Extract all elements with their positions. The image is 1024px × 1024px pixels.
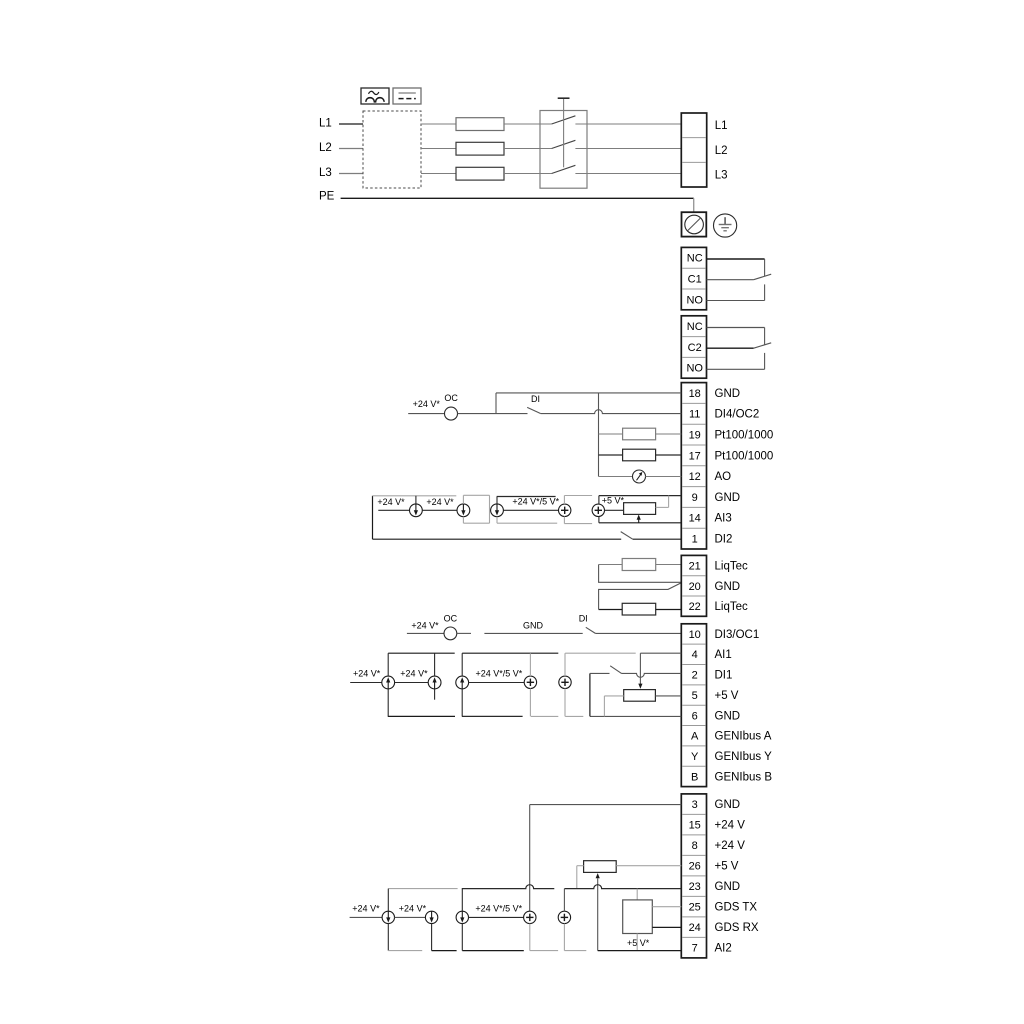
svg-text:10: 10 (689, 629, 701, 641)
svg-text:LiqTec: LiqTec (715, 560, 748, 572)
svg-text:A: A (691, 731, 699, 743)
svg-text:+5 V: +5 V (715, 861, 739, 873)
svg-text:GND: GND (715, 492, 741, 504)
svg-text:18: 18 (689, 388, 701, 400)
svg-text:NC: NC (687, 253, 703, 265)
svg-text:Pt100/1000: Pt100/1000 (715, 450, 774, 462)
svg-text:+24 V*/5 V*: +24 V*/5 V* (476, 668, 523, 678)
svg-text:+24 V*/5 V*: +24 V*/5 V* (512, 497, 559, 507)
svg-text:24: 24 (689, 922, 701, 934)
svg-text:AI3: AI3 (715, 513, 732, 525)
svg-text:NO: NO (686, 363, 703, 375)
svg-text:1: 1 (692, 534, 698, 546)
svg-text:22: 22 (689, 601, 701, 613)
svg-text:+5 V: +5 V (715, 690, 739, 702)
svg-text:7: 7 (692, 943, 698, 955)
svg-text:L1: L1 (715, 120, 728, 132)
svg-text:17: 17 (689, 450, 701, 462)
svg-text:GND: GND (715, 581, 741, 593)
svg-text:2: 2 (692, 670, 698, 682)
svg-text:+24 V: +24 V (715, 820, 746, 832)
svg-text:12: 12 (689, 471, 701, 483)
svg-text:+24 V*: +24 V* (352, 904, 380, 914)
svg-text:14: 14 (689, 513, 701, 525)
svg-text:26: 26 (689, 861, 701, 873)
svg-text:20: 20 (689, 581, 701, 593)
svg-text:DI: DI (531, 394, 540, 404)
svg-text:11: 11 (689, 409, 700, 421)
svg-text:L3: L3 (319, 167, 332, 179)
svg-text:GND: GND (715, 799, 741, 811)
svg-text:DI: DI (579, 614, 588, 624)
svg-text:Y: Y (691, 751, 699, 763)
svg-text:23: 23 (689, 881, 701, 893)
svg-text:9: 9 (692, 492, 698, 504)
svg-text:DI4/OC2: DI4/OC2 (715, 409, 760, 421)
svg-text:+24 V*: +24 V* (377, 497, 405, 507)
svg-text:GND: GND (715, 881, 741, 893)
svg-text:GND: GND (715, 710, 741, 722)
svg-text:6: 6 (692, 710, 698, 722)
svg-text:L1: L1 (319, 118, 332, 130)
svg-text:GENIbus B: GENIbus B (715, 771, 773, 783)
svg-text:B: B (691, 771, 698, 783)
svg-text:5: 5 (692, 690, 698, 702)
svg-text:+24 V: +24 V (715, 840, 746, 852)
svg-text:PE: PE (319, 191, 335, 203)
svg-text:+24 V*: +24 V* (399, 904, 427, 914)
svg-text:3: 3 (692, 799, 698, 811)
svg-text:25: 25 (689, 902, 701, 914)
svg-text:OC: OC (444, 393, 458, 403)
svg-text:GENIbus Y: GENIbus Y (715, 751, 773, 763)
svg-text:DI3/OC1: DI3/OC1 (715, 629, 760, 641)
svg-text:+24 V*: +24 V* (426, 497, 454, 507)
svg-text:+5 V*: +5 V* (602, 496, 625, 506)
svg-text:+5 V*: +5 V* (627, 938, 650, 948)
svg-text:+24 V*: +24 V* (400, 668, 428, 678)
svg-text:LiqTec: LiqTec (715, 601, 748, 613)
svg-text:NO: NO (686, 294, 703, 306)
svg-text:C1: C1 (688, 274, 702, 286)
svg-text:GDS RX: GDS RX (715, 922, 759, 934)
svg-text:4: 4 (692, 649, 698, 661)
svg-text:OC: OC (444, 614, 458, 624)
svg-text:C2: C2 (688, 342, 702, 354)
svg-text:L2: L2 (715, 145, 728, 157)
svg-text:+24 V*/5 V*: +24 V*/5 V* (475, 904, 522, 914)
svg-text:DI2: DI2 (715, 534, 733, 546)
svg-text:GND: GND (523, 620, 544, 630)
svg-text:15: 15 (689, 820, 701, 832)
svg-text:AI2: AI2 (715, 943, 732, 955)
svg-text:+24 V*: +24 V* (411, 620, 439, 630)
svg-text:GND: GND (715, 388, 741, 400)
svg-text:Pt100/1000: Pt100/1000 (715, 430, 774, 442)
svg-text:GENIbus A: GENIbus A (715, 731, 772, 743)
svg-text:NC: NC (687, 321, 703, 333)
svg-text:+24 V*: +24 V* (413, 399, 441, 409)
svg-text:DI1: DI1 (715, 670, 733, 682)
svg-text:AO: AO (715, 471, 732, 483)
svg-text:+24 V*: +24 V* (353, 668, 381, 678)
svg-text:19: 19 (689, 430, 701, 442)
svg-text:L3: L3 (715, 170, 728, 182)
svg-text:21: 21 (689, 560, 701, 572)
svg-text:L2: L2 (319, 142, 332, 154)
svg-text:8: 8 (692, 840, 698, 852)
svg-text:GDS TX: GDS TX (715, 902, 758, 914)
svg-text:AI1: AI1 (715, 649, 732, 661)
